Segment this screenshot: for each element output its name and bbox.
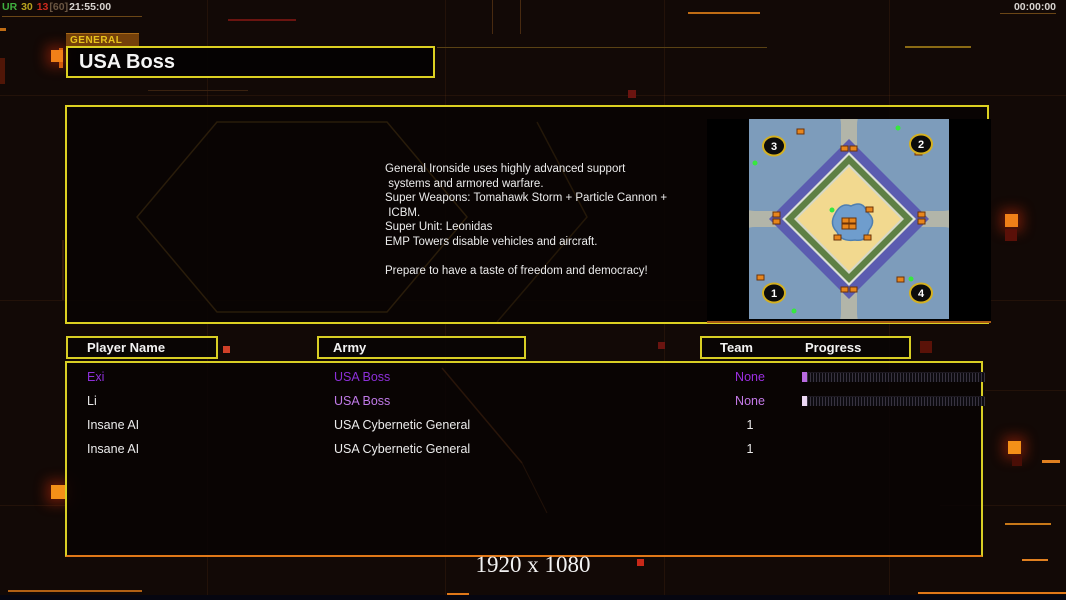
- start-position-3: 3: [771, 141, 777, 153]
- player-name: Li: [87, 394, 97, 408]
- player-army: USA Boss: [334, 370, 390, 384]
- general-description: General Ironside uses highly advanced su…: [385, 162, 715, 279]
- perf-fps-cap: [60]: [49, 1, 68, 13]
- progress-track: [807, 396, 985, 406]
- header-progress-label: Progress: [753, 340, 861, 355]
- player-load-progress-bar: [802, 396, 985, 406]
- player-load-progress-bar: [802, 372, 985, 382]
- player-row: Insane AI USA Cybernetic General 1: [67, 414, 981, 438]
- performance-overlay: UR 30 13[60]21:55:00: [2, 1, 112, 13]
- perf-renderer-label: UR: [2, 1, 17, 13]
- perf-ms-value: 13: [37, 1, 49, 13]
- match-timer: 00:00:00: [1014, 1, 1056, 13]
- player-army: USA Boss: [334, 394, 390, 408]
- general-title: USA Boss: [68, 51, 175, 74]
- player-row: Exi USA Boss None: [67, 366, 981, 390]
- player-team: 1: [720, 442, 780, 456]
- player-name: Exi: [87, 370, 104, 384]
- perf-fps-value: 30: [21, 1, 33, 13]
- player-team: None: [720, 394, 780, 408]
- resolution-label: 1920 x 1080: [0, 552, 1066, 578]
- player-army: USA Cybernetic General: [334, 442, 470, 456]
- minimap-container: 3 2 1 4: [707, 119, 991, 323]
- header-team-progress: Team Progress: [700, 336, 911, 359]
- player-name: Insane AI: [87, 442, 139, 456]
- perf-clock-time: 21:55:00: [69, 1, 111, 13]
- header-army-label: Army: [319, 340, 366, 355]
- players-panel: Exi USA Boss None Li USA Boss None Insan…: [65, 361, 983, 557]
- player-name: Insane AI: [87, 418, 139, 432]
- general-info-panel: General Ironside uses highly advanced su…: [65, 105, 989, 324]
- player-army: USA Cybernetic General: [334, 418, 470, 432]
- start-position-2: 2: [918, 139, 924, 151]
- player-row: Li USA Boss None: [67, 390, 981, 414]
- start-position-4: 4: [918, 288, 925, 300]
- loading-screen: { "overlay": { "perf_label": "UR", "perf…: [0, 0, 1066, 600]
- header-army: Army: [317, 336, 526, 359]
- general-title-box: USA Boss: [66, 46, 435, 78]
- player-team: 1: [720, 418, 780, 432]
- header-team-label: Team: [702, 340, 753, 355]
- progress-track: [807, 372, 985, 382]
- start-position-1: 1: [771, 288, 777, 300]
- bottom-letterbox-strip: [0, 595, 1066, 600]
- general-tab-label: GENERAL: [66, 33, 139, 47]
- player-team: None: [720, 370, 780, 384]
- player-row: Insane AI USA Cybernetic General 1: [67, 438, 981, 462]
- header-player-name: Player Name: [66, 336, 218, 359]
- minimap: 3 2 1 4: [749, 119, 949, 319]
- header-player-name-label: Player Name: [68, 340, 165, 355]
